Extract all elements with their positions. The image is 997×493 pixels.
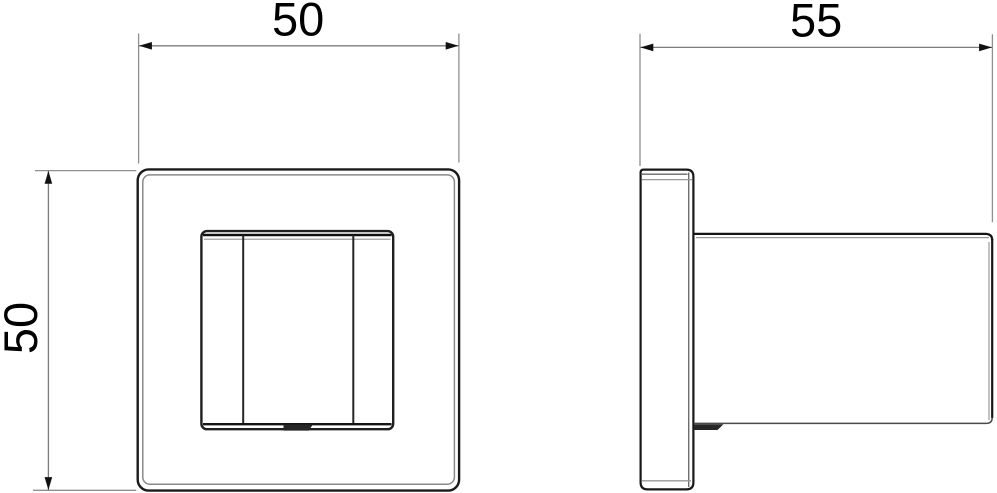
svg-text:55: 55 <box>790 0 842 46</box>
svg-text:50: 50 <box>0 302 47 354</box>
svg-text:50: 50 <box>272 0 324 46</box>
